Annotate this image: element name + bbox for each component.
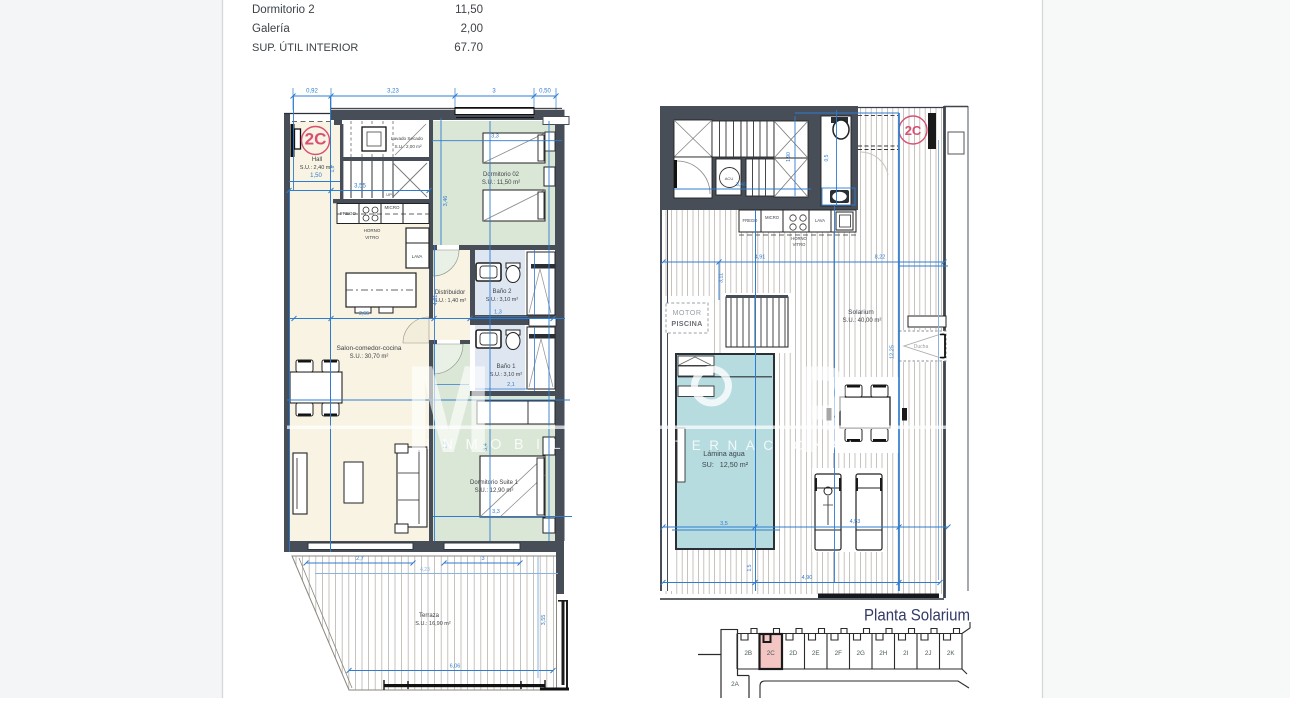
svg-text:S.U.: 2,00 m²: S.U.: 2,00 m² [394,144,422,149]
svg-text:2,7: 2,7 [356,556,364,562]
svg-text:3,46: 3,46 [443,196,449,207]
svg-text:2A: 2A [731,681,740,688]
svg-text:PISCINA: PISCINA [671,319,702,328]
svg-text:0,5: 0,5 [824,154,830,161]
svg-text:Salon-comedor-cocina: Salon-comedor-cocina [336,345,401,352]
svg-text:Baño 2: Baño 2 [492,289,512,295]
svg-text:FREGO: FREGO [340,211,357,216]
svg-text:2F: 2F [835,650,843,657]
svg-text:VITRO: VITRO [793,242,807,247]
svg-text:6,06: 6,06 [450,664,461,670]
svg-text:S.U.: 11,50 m²: S.U.: 11,50 m² [482,180,520,186]
svg-text:1,5: 1,5 [747,564,753,571]
svg-text:1,90: 1,90 [786,152,792,162]
svg-text:2,1: 2,1 [507,382,515,388]
svg-text:2J: 2J [925,650,932,657]
svg-text:4,91: 4,91 [755,255,766,261]
svg-text:4,23: 4,23 [420,567,430,573]
svg-text:INMOBILIA: INMOBILIA [426,437,612,453]
svg-text:3,3: 3,3 [492,509,500,515]
svg-text:2C: 2C [767,650,776,657]
svg-text:2,66: 2,66 [359,311,369,317]
svg-text:MOTOR: MOTOR [672,308,701,317]
svg-text:S.U.: 3,10 m²: S.U.: 3,10 m² [490,372,523,378]
svg-text:Distribuidor: Distribuidor [435,290,465,296]
svg-text:S.U.: 12,90 m²: S.U.: 12,90 m² [475,488,514,494]
svg-text:2E: 2E [812,650,820,657]
svg-text:2K: 2K [947,650,956,657]
svg-text:TERNACIONAL: TERNACIONAL [675,438,865,453]
svg-text:UP: UP [386,192,392,197]
svg-text:2G: 2G [857,650,866,657]
svg-text:LAVA: LAVA [412,254,423,259]
svg-text:HORNO: HORNO [364,228,381,233]
svg-text:0,92: 0,92 [306,89,318,95]
svg-text:Lavado Secado: Lavado Secado [391,136,423,141]
svg-text:2I: 2I [903,650,909,657]
svg-text:3,55: 3,55 [354,184,366,190]
svg-text:HORNO: HORNO [791,236,807,241]
svg-text:3,5: 3,5 [720,521,728,527]
svg-text:Terraza: Terraza [419,613,440,619]
svg-text:8,22: 8,22 [875,255,886,261]
svg-text:2H: 2H [879,650,888,657]
svg-text:SU: 12,50 m²: SU: 12,50 m² [702,460,749,469]
svg-text:VITRO: VITRO [365,235,379,240]
svg-text:S.U.: 3,10 m²: S.U.: 3,10 m² [486,297,519,303]
svg-text:2D: 2D [789,650,798,657]
svg-text:Galería: Galería [252,23,290,35]
svg-text:2C: 2C [905,123,922,138]
svg-text:Ducha: Ducha [914,344,929,350]
svg-text:4,53: 4,53 [850,519,861,525]
svg-text:Dormitorio 02: Dormitorio 02 [483,172,520,178]
svg-text:3,3: 3,3 [491,134,499,140]
svg-text:2,00: 2,00 [461,23,483,35]
svg-text:MICRO: MICRO [765,215,780,220]
svg-text:1,3: 1,3 [494,310,502,316]
svg-text:3,23: 3,23 [387,89,399,95]
svg-text:SUP. ÚTIL INTERIOR: SUP. ÚTIL INTERIOR [252,41,358,54]
svg-text:2C: 2C [305,130,327,149]
svg-text:S.U.: 30,70 m²: S.U.: 30,70 m² [350,354,389,360]
svg-text:0,50: 0,50 [539,89,551,95]
svg-text:LAVA: LAVA [815,218,825,223]
svg-text:Baño 1: Baño 1 [496,364,516,370]
svg-text:Hall: Hall [312,157,322,163]
svg-text:Dormitorio 2: Dormitorio 2 [252,4,315,16]
svg-text:11,50: 11,50 [455,4,483,16]
svg-text:S.U.: 2,40 m²: S.U.: 2,40 m² [300,165,333,171]
svg-text:4,90: 4,90 [802,575,813,581]
svg-text:S.U.: 40,00 m²: S.U.: 40,00 m² [843,318,882,324]
svg-text:MICRO: MICRO [385,205,400,210]
svg-text:12,25: 12,25 [890,345,896,359]
svg-text:67.70: 67.70 [454,42,483,54]
svg-text:2B: 2B [744,650,752,657]
svg-text:1,50: 1,50 [310,173,322,179]
svg-text:M: M [405,340,492,479]
svg-text:3,55: 3,55 [541,615,547,626]
svg-text:Dormitorio Suite 1: Dormitorio Suite 1 [470,480,519,486]
svg-text:R: R [797,341,849,479]
svg-text:3: 3 [481,556,484,562]
svg-text:3,46: 3,46 [736,182,746,188]
svg-text:S.U.: 16,90 m²: S.U.: 16,90 m² [415,621,451,627]
svg-text:1,6: 1,6 [330,165,336,172]
svg-text:Solarium: Solarium [848,309,874,316]
svg-text:ACU: ACU [725,176,734,181]
svg-text:4,61: 4,61 [433,295,439,306]
svg-text:Planta Solarium: Planta Solarium [864,607,970,625]
